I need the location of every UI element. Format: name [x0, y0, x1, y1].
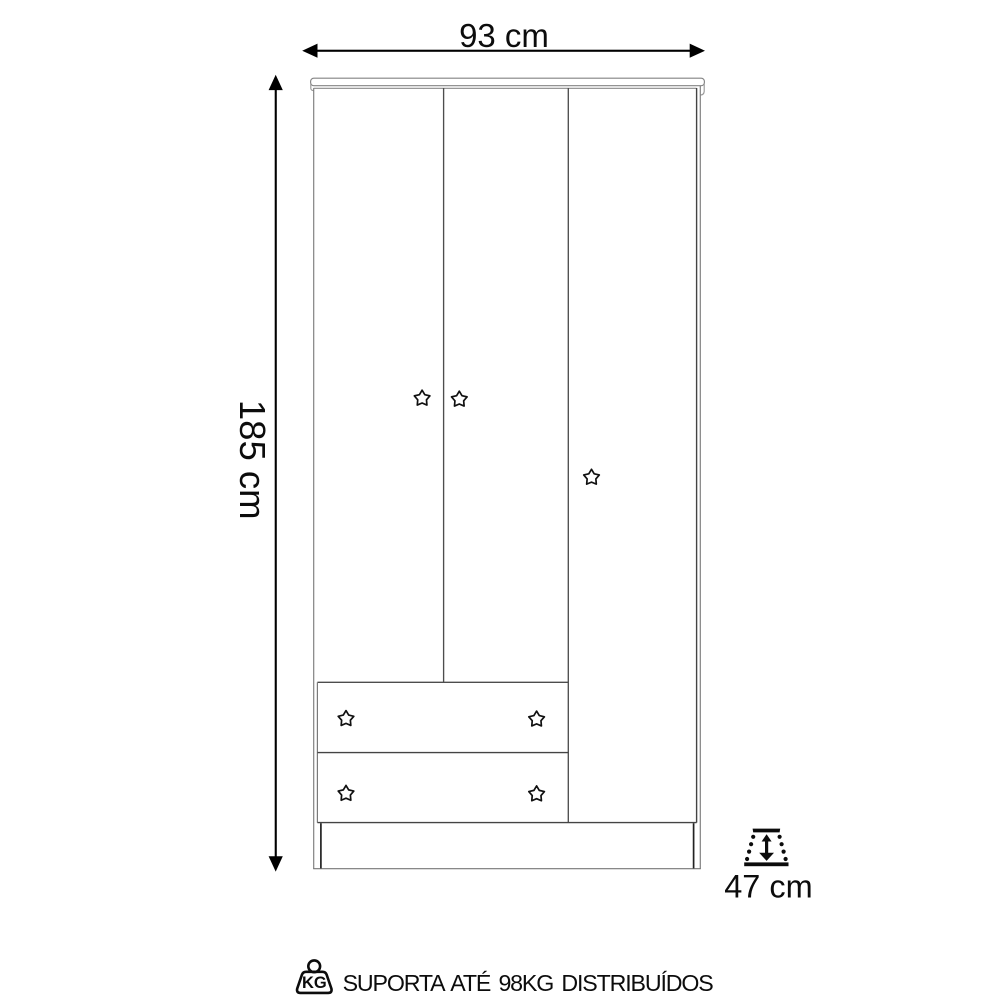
svg-text:185 cm: 185 cm	[232, 400, 273, 520]
svg-text:SUPORTA ATÉ 98KG DISTRIBUÍDOS: SUPORTA ATÉ 98KG DISTRIBUÍDOS	[343, 970, 714, 996]
svg-text:93 cm: 93 cm	[459, 17, 549, 54]
svg-text:KG: KG	[302, 974, 327, 992]
svg-text:47 cm: 47 cm	[724, 869, 813, 905]
